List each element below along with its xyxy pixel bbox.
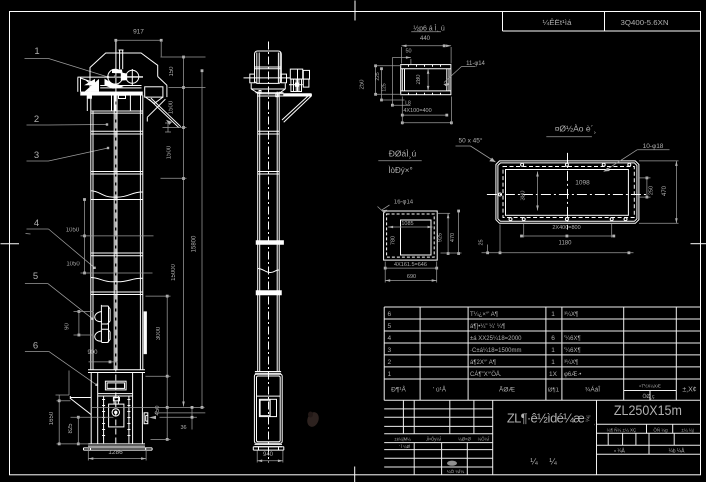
svg-text:5: 5 [33,271,38,282]
svg-text:á¶]•¼" ¼' ¼¶: á¶]•¼" ¼' ¼¶ [470,324,505,330]
svg-text:15800: 15800 [192,235,198,252]
svg-text:«T½X¼XÆ: «T½X¼XÆ [639,384,661,389]
svg-text:780: 780 [391,236,397,245]
svg-text:2: 2 [34,114,39,125]
svg-text:1: 1 [551,347,555,354]
svg-text:6: 6 [33,341,38,352]
svg-text:11-φ14: 11-φ14 [466,61,485,67]
svg-text:925: 925 [438,233,444,242]
svg-text:1: 1 [388,371,392,378]
svg-text:225: 225 [375,72,381,81]
svg-text:1500: 1500 [167,145,173,159]
svg-text:¼Ö¼Î: ¼Ö¼Î [478,437,490,442]
svg-text:1098: 1098 [575,180,590,187]
svg-text:900: 900 [87,350,98,356]
svg-text:15000: 15000 [171,263,177,280]
svg-text:'¼6X¶: '¼6X¶ [564,336,581,342]
svg-text:250: 250 [649,186,655,195]
svg-text:6: 6 [388,311,392,318]
svg-text:ÐØáÌ¸ú: ÐØáÌ¸ú [389,149,417,159]
svg-text:¼Ö ¼Î¼: ¼Ö ¼Î¼ [447,468,465,474]
svg-text:470: 470 [450,233,456,242]
svg-text:¼: ¼ [530,457,538,467]
svg-text:6: 6 [551,335,555,342]
svg-text:1180: 1180 [559,240,573,246]
svg-text:4X161.5=646: 4X161.5=646 [394,262,427,268]
svg-text:1650: 1650 [49,411,55,425]
svg-text:1286: 1286 [108,449,123,456]
svg-text:ÌòÐý×°: ÌòÐý×° [388,166,412,175]
svg-text:³¼X¶: ³¼X¶ [564,312,578,318]
svg-text:90: 90 [65,323,71,330]
svg-text:4: 4 [34,218,39,229]
svg-text:,ÏÞÖy¼Î: ,ÏÞÖy¼Î [426,437,442,442]
svg-text:,´: ,´ [594,421,597,427]
svg-text:³¼X¶: ³¼X¶ [564,360,578,366]
svg-text:Ð¶¹Å: Ð¶¹Å [391,385,406,394]
svg-text:1: 1 [34,46,39,57]
svg-text:T¼¿×°' A¶: T¼¿×°' A¶ [470,312,498,318]
svg-text:ÃØÆ: ÃØÆ [499,385,515,394]
svg-text:¾ÁáÎ: ¾ÁáÎ [585,385,600,394]
svg-text:36: 36 [180,425,186,431]
svg-text:125: 125 [382,83,388,92]
svg-text:1085: 1085 [401,221,413,227]
svg-text:1050: 1050 [66,228,80,234]
svg-text:¤Ø½Ào è´¸: ¤Ø½Ào è´¸ [555,124,597,134]
svg-text:±,X¢: ±,X¢ [682,387,696,394]
svg-text:2: 2 [388,359,392,366]
svg-text:±ė¼|M¼: ±ė¼|M¼ [394,437,411,442]
svg-text:▪ ¼Å: ▪ ¼Å [614,448,625,455]
svg-text:ZL250X15m: ZL250X15m [614,402,682,418]
svg-text:¼: ¼ [549,457,557,467]
svg-text:1: 1 [551,311,555,318]
svg-text:CÁ¶"X°'ÕÅ.: CÁ¶"X°'ÕÅ. [470,371,502,378]
svg-text:±á XX25¼18=2000: ±á XX25¼18=2000 [470,336,522,342]
svg-text:16-φ14: 16-φ14 [394,200,414,206]
svg-text:250: 250 [360,79,366,90]
svg-text:½p6 á Ì¸ ú: ½p6 á Ì¸ ú [413,23,445,32]
svg-text:ZL¶·ê½ìdé¼æ: ZL¶·ê½ìdé¼æ [507,411,584,426]
svg-text:917: 917 [133,29,144,36]
svg-text:4X100=400: 4X100=400 [403,108,431,114]
svg-text:ÖØ¸ç: ÖØ¸ç [643,393,655,400]
svg-text:'¼6X¶: '¼6X¶ [564,348,581,354]
svg-text:1: 1 [551,359,555,366]
svg-text:10-φ18: 10-φ18 [643,143,664,150]
svg-text:450: 450 [155,405,161,416]
svg-text:50 x 45°: 50 x 45° [459,137,483,145]
svg-text:825: 825 [68,423,74,434]
svg-text:¼¡: ¼¡ [586,415,592,422]
svg-text:¼b ¼Å: ¼b ¼Å [669,448,686,455]
svg-text:3: 3 [388,347,392,354]
svg-text:280: 280 [416,74,422,85]
svg-text:50: 50 [405,49,411,55]
svg-text:2X400=800: 2X400=800 [552,225,580,231]
svg-text:440: 440 [420,36,431,42]
svg-text:3000: 3000 [156,326,162,340]
svg-text:1500: 1500 [169,100,175,114]
svg-text:1050: 1050 [66,262,80,268]
svg-text:1X: 1X [549,371,558,378]
svg-text:' Î ¼Ø: ' Î ¼Ø [399,444,411,449]
svg-text:150: 150 [169,66,175,77]
svg-text:3: 3 [34,150,39,161]
svg-text:á¶2X°' A¶: á¶2X°' A¶ [470,360,496,366]
svg-text:φ6Æ·•: φ6Æ·• [564,372,581,378]
svg-text:·C±á¼18=1500mm: ·C±á¼18=1500mm [470,348,522,354]
svg-text:25: 25 [479,239,485,245]
svg-text:¼¶ Ñ¼ ±¼ XÇ: ¼¶ Ñ¼ ±¼ XÇ [607,426,637,432]
svg-text:¼Ø×Ø: ¼Ø×Ø [458,437,471,442]
svg-text:Ø¶1: Ø¶1 [548,388,560,394]
svg-text:ÖÑ ¼g: ÖÑ ¼g [653,426,668,432]
svg-text:690: 690 [407,274,416,280]
svg-text:' ú¹Å: ' ú¹Å [433,385,447,394]
svg-text:5: 5 [388,323,392,330]
svg-text:940: 940 [263,452,274,458]
svg-text:4: 4 [388,335,392,342]
svg-text:470: 470 [662,185,668,196]
svg-text:±¼ ¼j: ±¼ ¼j [681,427,693,432]
svg-text:¼ÊËt¹ìá: ¼ÊËt¹ìá [543,18,572,27]
svg-text:380: 380 [521,190,527,201]
svg-text:3Q400-5.6XN: 3Q400-5.6XN [621,20,669,27]
svg-text:L8: L8 [405,101,411,107]
